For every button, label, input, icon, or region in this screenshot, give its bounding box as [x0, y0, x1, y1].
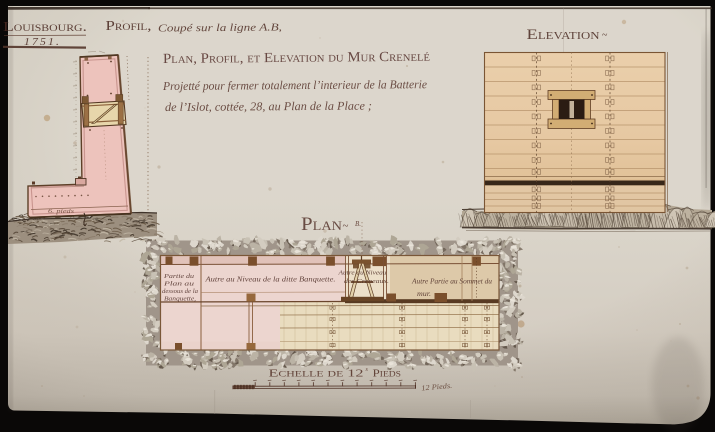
- svg-text:Louisbourg.: Louisbourg.: [3, 19, 87, 34]
- svg-text:Echelle de 12: Echelle de 12: [269, 368, 364, 380]
- svg-text:Pieds: Pieds: [373, 368, 402, 380]
- svg-text:Partie du: Partie du: [163, 273, 194, 280]
- svg-text:dessous de la: dessous de la: [162, 288, 198, 295]
- svg-text:de l’Islot, cottée, 28, au Pla: de l’Islot, cottée, 28, au Plan de la Pl…: [165, 99, 372, 114]
- svg-text:Plan au: Plan au: [163, 281, 194, 288]
- svg-text:6. pieds: 6. pieds: [48, 209, 75, 215]
- svg-text:Profil,: Profil,: [106, 18, 152, 33]
- svg-text:Plan: Plan: [301, 214, 343, 235]
- svg-text:Autre au Niveau: Autre au Niveau: [337, 270, 387, 277]
- svg-text:des Creneaux.: des Creneaux.: [344, 278, 389, 285]
- svg-text:mur.: mur.: [417, 290, 431, 298]
- svg-text:B.: B.: [355, 220, 361, 228]
- svg-text:Projetté pour fermer totalemen: Projetté pour fermer totalement l’interi…: [162, 77, 428, 93]
- svg-text:Elevation: Elevation: [527, 27, 600, 43]
- svg-text:~: ~: [602, 30, 608, 41]
- svg-text:Coupé sur la ligne A.B,: Coupé sur la ligne A.B,: [158, 22, 282, 34]
- svg-text:~: ~: [343, 220, 349, 232]
- svg-text:Banquette,: Banquette,: [164, 296, 196, 303]
- svg-text:Autre au Niveau de la ditte Ba: Autre au Niveau de la ditte Banquette.: [204, 276, 335, 284]
- svg-text:Autre Partie au Sommet du: Autre Partie au Sommet du: [411, 278, 492, 286]
- svg-text:Plan, Profil, et Elevation du: Plan, Profil, et Elevation du Mur Crenel…: [163, 50, 430, 67]
